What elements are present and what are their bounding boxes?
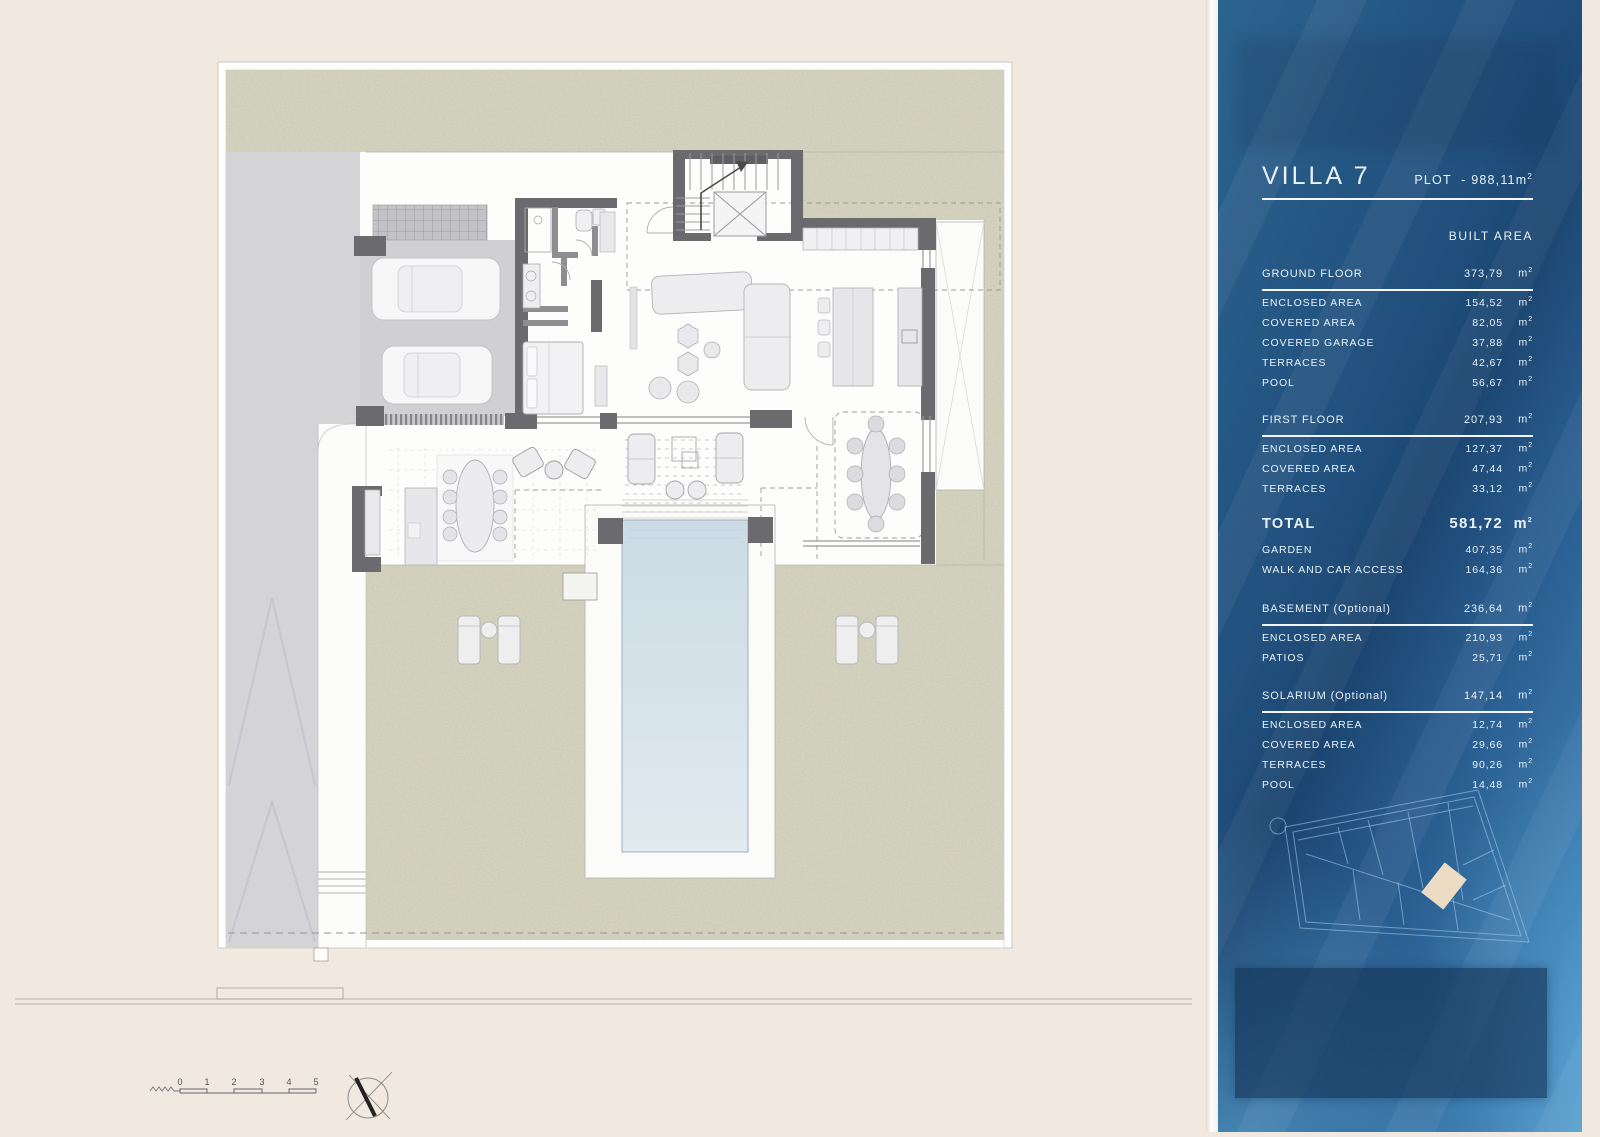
- car: [382, 346, 492, 404]
- area-row: COVERED AREA82,05m2: [1262, 316, 1533, 336]
- area-label: SOLARIUM (Optional): [1262, 690, 1445, 702]
- area-unit: m2: [1503, 413, 1533, 426]
- area-label: WALK AND CAR ACCESS: [1262, 564, 1445, 576]
- area-row: TOTAL581,72m2: [1262, 515, 1533, 543]
- area-row: FIRST FLOOR207,93m2: [1262, 413, 1533, 437]
- stools: [818, 298, 830, 357]
- side-deck: [936, 222, 984, 490]
- area-label: ENCLOSED AREA: [1262, 297, 1445, 309]
- area-value: 29,66: [1445, 739, 1503, 751]
- area-value: 56,67: [1445, 377, 1503, 389]
- area-value: 33,12: [1445, 483, 1503, 495]
- area-value: 82,05: [1445, 317, 1503, 329]
- page-edge: [1206, 0, 1218, 1132]
- garage-door: [383, 414, 504, 425]
- area-value: 42,67: [1445, 357, 1503, 369]
- area-row: POOL56,67m2: [1262, 376, 1533, 396]
- area-label: COVERED AREA: [1262, 317, 1445, 329]
- area-unit: m2: [1503, 482, 1533, 495]
- area-label: COVERED AREA: [1262, 463, 1445, 475]
- pouf: [677, 381, 699, 403]
- area-unit: m2: [1503, 336, 1533, 349]
- area-label: TERRACES: [1262, 483, 1445, 495]
- scale-bar: 0 1 2 3 4 5: [150, 1077, 319, 1093]
- area-unit: m2: [1503, 296, 1533, 309]
- area-value: 147,14: [1445, 690, 1503, 702]
- vanity: [523, 264, 540, 308]
- area-label: TERRACES: [1262, 357, 1445, 369]
- pergola: [373, 205, 487, 240]
- area-row: ENCLOSED AREA127,37m2: [1262, 442, 1533, 462]
- area-row: GROUND FLOOR373,79m2: [1262, 267, 1533, 291]
- scale-label: 2: [231, 1077, 236, 1087]
- scale-label: 5: [313, 1077, 318, 1087]
- logo-area: [1235, 38, 1557, 150]
- table-spacer: [1262, 396, 1533, 413]
- toilet: [576, 210, 592, 231]
- area-unit: m2: [1503, 651, 1533, 664]
- scale-label: 3: [259, 1077, 264, 1087]
- scale-label: 1: [204, 1077, 209, 1087]
- area-unit: m2: [1503, 543, 1533, 556]
- closet: [600, 212, 615, 252]
- table-spacer: [1262, 671, 1533, 689]
- scale-label: 0: [177, 1077, 182, 1087]
- pool-area: [563, 500, 775, 878]
- panel-header: VILLA 7 PLOT - 988,11m2: [1262, 162, 1533, 200]
- street-lines: [15, 988, 1192, 1004]
- area-unit: m2: [1503, 738, 1533, 751]
- area-value: 127,37: [1445, 443, 1503, 455]
- pool: [622, 520, 748, 852]
- area-row: COVERED GARAGE37,88m2: [1262, 336, 1533, 356]
- area-unit: m2: [1503, 516, 1533, 532]
- area-unit: m2: [1503, 718, 1533, 731]
- area-unit: m2: [1503, 316, 1533, 329]
- area-label: GARDEN: [1262, 544, 1445, 556]
- area-label: ENCLOSED AREA: [1262, 443, 1445, 455]
- area-value: 373,79: [1445, 268, 1503, 280]
- brochure-page: 0 1 2 3 4 5 VILLA 7 PLOT - 988,11m2 BUIL…: [0, 0, 1600, 1132]
- area-row: ENCLOSED AREA154,52m2: [1262, 296, 1533, 316]
- area-value: 47,44: [1445, 463, 1503, 475]
- area-row: WALK AND CAR ACCESS164,36m2: [1262, 563, 1533, 583]
- area-label: COVERED GARAGE: [1262, 337, 1445, 349]
- title-underline: [1262, 198, 1533, 200]
- scale-labels: 0 1 2 3 4 5: [177, 1077, 318, 1087]
- area-value: 407,35: [1445, 544, 1503, 556]
- area-table: GROUND FLOOR373,79m2ENCLOSED AREA154,52m…: [1262, 267, 1533, 798]
- area-value: 210,93: [1445, 632, 1503, 644]
- area-unit: m2: [1503, 267, 1533, 280]
- area-unit: m2: [1503, 356, 1533, 369]
- area-unit: m2: [1503, 631, 1533, 644]
- area-row: SOLARIUM (Optional)147,14m2: [1262, 689, 1533, 713]
- area-row: ENCLOSED AREA210,93m2: [1262, 631, 1533, 651]
- tv-board: [630, 287, 637, 349]
- area-value: 37,88: [1445, 337, 1503, 349]
- plot-size: PLOT - 988,11m2: [1414, 172, 1533, 187]
- area-unit: m2: [1503, 376, 1533, 389]
- info-panel: VILLA 7 PLOT - 988,11m2 BUILT AREA GROUN…: [1218, 0, 1582, 1132]
- area-label: GROUND FLOOR: [1262, 268, 1445, 280]
- area-row: COVERED AREA47,44m2: [1262, 462, 1533, 482]
- area-unit: m2: [1503, 602, 1533, 615]
- pouf: [649, 377, 671, 399]
- area-value: 581,72: [1445, 515, 1503, 532]
- site-map: [1248, 770, 1548, 952]
- scale-label: 4: [286, 1077, 291, 1087]
- dining-table: [861, 429, 891, 519]
- area-row: COVERED AREA29,66m2: [1262, 738, 1533, 758]
- area-label: POOL: [1262, 377, 1445, 389]
- area-label: ENCLOSED AREA: [1262, 632, 1445, 644]
- area-value: 207,93: [1445, 414, 1503, 426]
- table-spacer: [1262, 502, 1533, 515]
- highlighted-plot: [1421, 862, 1466, 909]
- bed: [523, 342, 583, 414]
- area-row: ENCLOSED AREA12,74m2: [1262, 718, 1533, 738]
- area-label: TERRACES: [1262, 759, 1445, 771]
- area-unit: m2: [1503, 462, 1533, 475]
- area-row: TERRACES42,67m2: [1262, 356, 1533, 376]
- north-arrow-icon: [346, 1072, 392, 1120]
- area-unit: m2: [1503, 758, 1533, 771]
- area-label: PATIOS: [1262, 652, 1445, 664]
- villa-title: VILLA 7: [1262, 162, 1371, 191]
- car: [372, 258, 500, 320]
- area-value: 164,36: [1445, 564, 1503, 576]
- area-label: COVERED AREA: [1262, 739, 1445, 751]
- area-label: ENCLOSED AREA: [1262, 719, 1445, 731]
- tv-bench: [595, 366, 607, 406]
- area-value: 236,64: [1445, 603, 1503, 615]
- area-value: 25,71: [1445, 652, 1503, 664]
- area-row: BASEMENT (Optional)236,64m2: [1262, 602, 1533, 626]
- area-value: 12,74: [1445, 719, 1503, 731]
- dining-table: [456, 460, 494, 552]
- area-label: FIRST FLOOR: [1262, 414, 1445, 426]
- garden-feature: [563, 573, 597, 600]
- table-spacer: [1262, 583, 1533, 602]
- area-row: TERRACES33,12m2: [1262, 482, 1533, 502]
- area-label: BASEMENT (Optional): [1262, 603, 1445, 615]
- area-unit: m2: [1503, 563, 1533, 576]
- area-label: TOTAL: [1262, 516, 1445, 532]
- area-row: PATIOS25,71m2: [1262, 651, 1533, 671]
- area-unit: m2: [1503, 442, 1533, 455]
- area-unit: m2: [1503, 689, 1533, 702]
- area-value: 154,52: [1445, 297, 1503, 309]
- area-row: GARDEN407,35m2: [1262, 543, 1533, 563]
- area-value: 90,26: [1445, 759, 1503, 771]
- built-area-label: BUILT AREA: [1449, 229, 1533, 243]
- footer-logo-block: [1235, 968, 1547, 1098]
